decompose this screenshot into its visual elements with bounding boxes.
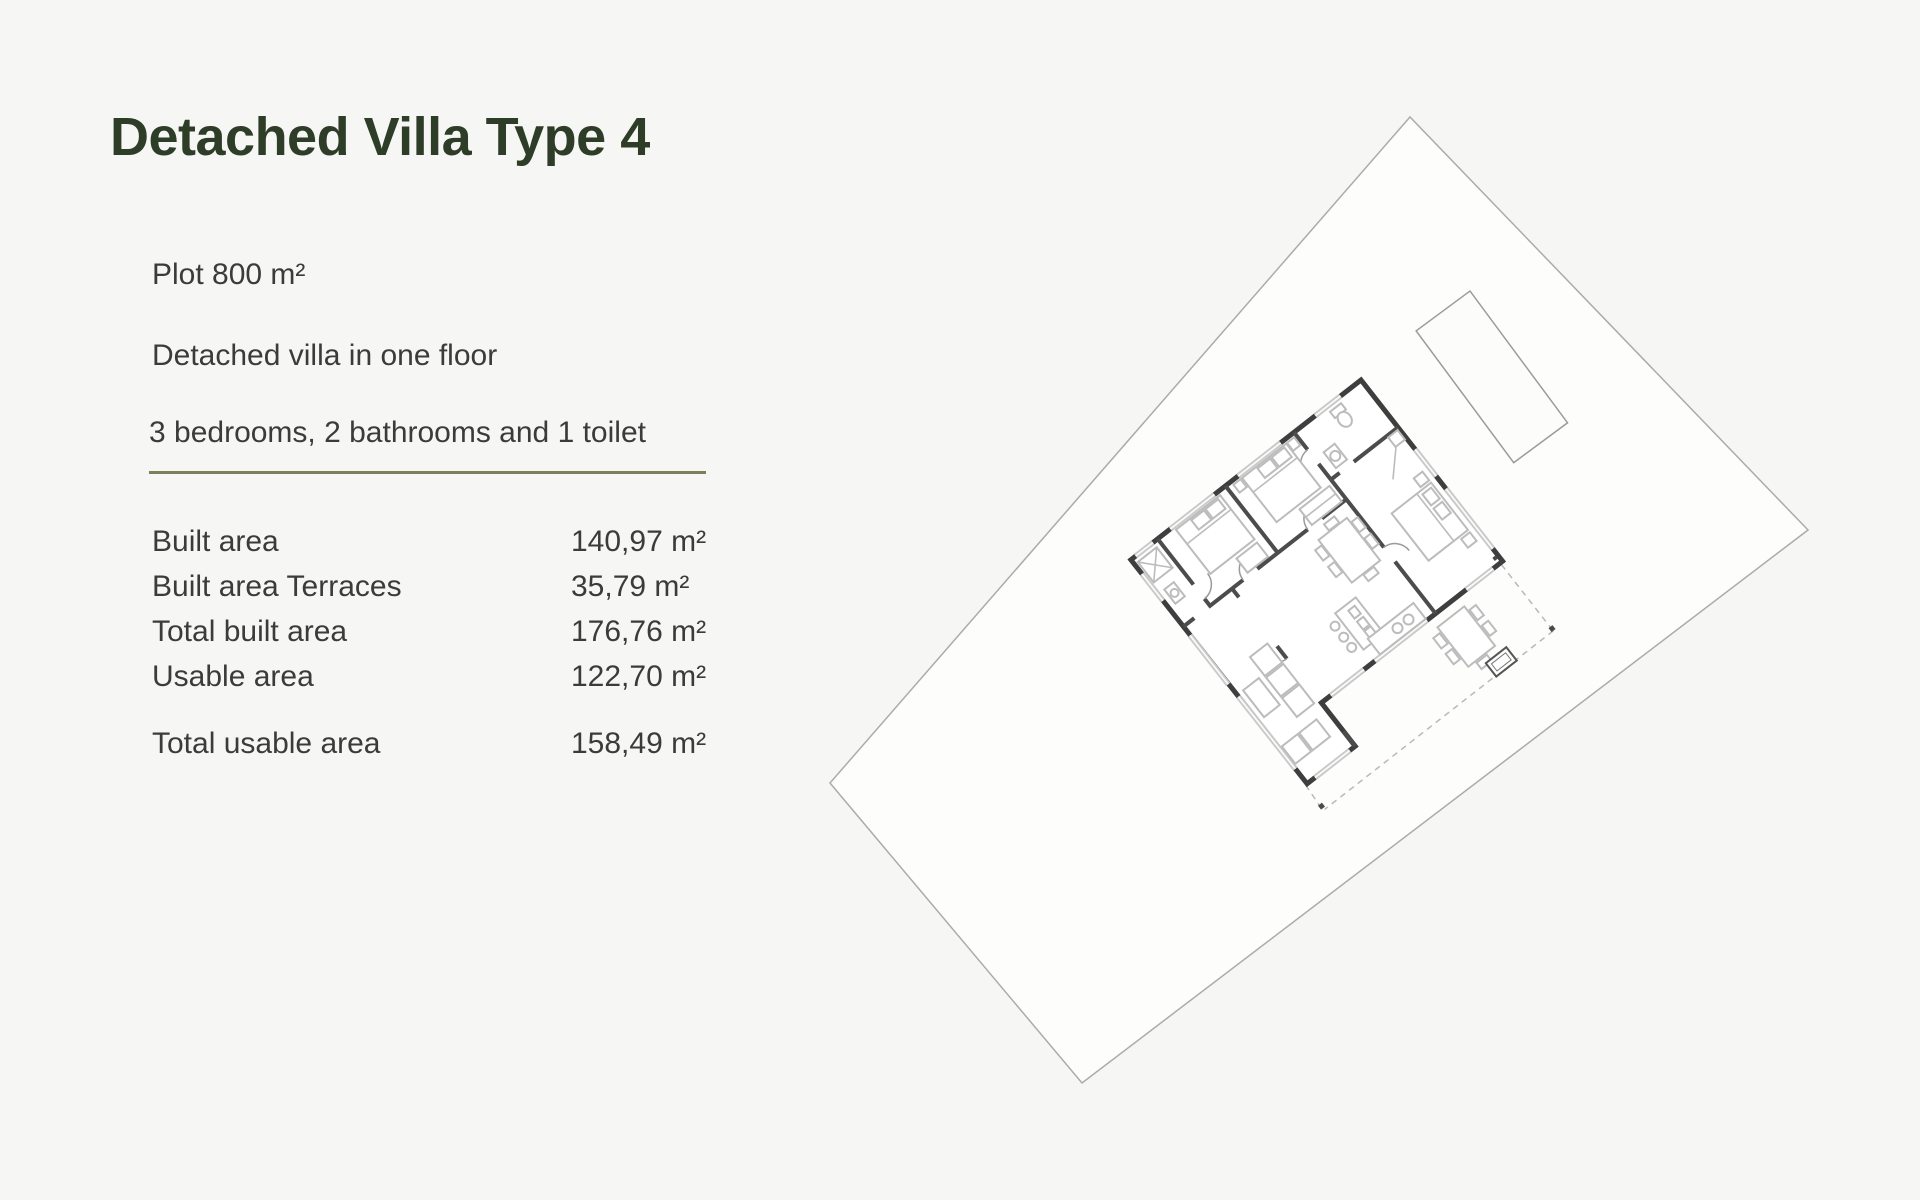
site-plan-drawing bbox=[0, 0, 1920, 1200]
brochure-page: Detached Villa Type 4 Plot 800 m² Detach… bbox=[0, 0, 1920, 1200]
